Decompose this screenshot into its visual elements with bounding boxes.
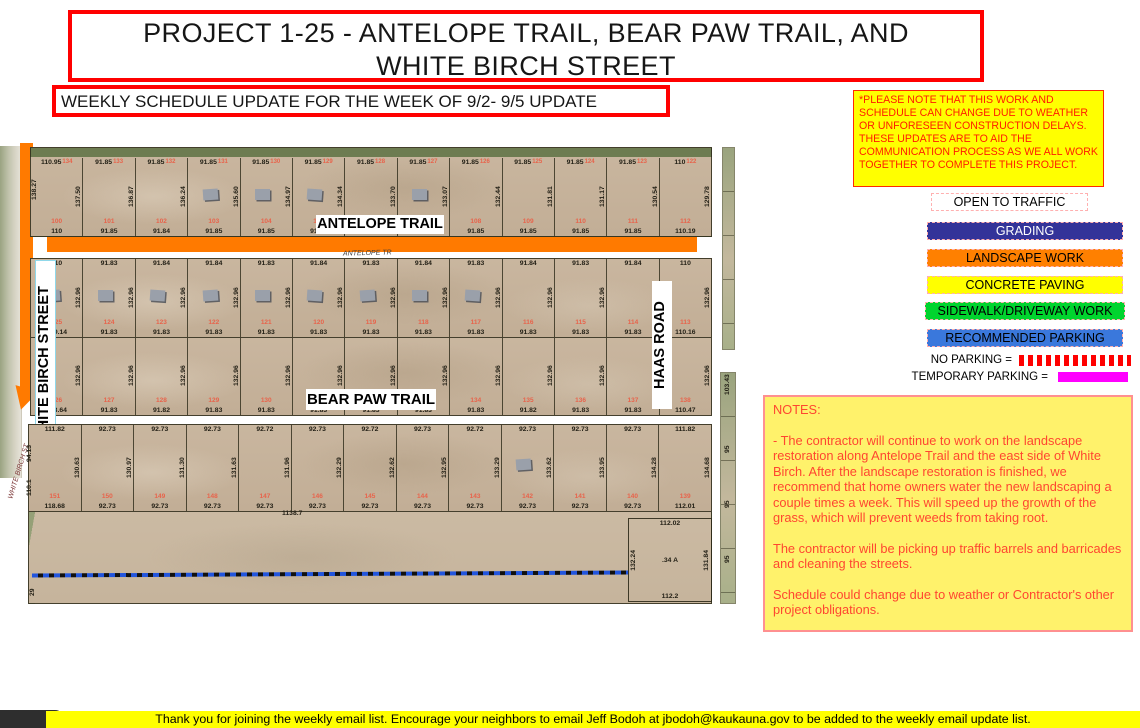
lot-number: 145: [365, 493, 376, 500]
lot-number: 139: [680, 493, 691, 500]
lot-depth-dimension: 132.96: [285, 269, 292, 326]
lot-depth-dimension: 132.96: [128, 269, 135, 326]
lot-depth-dimension: 132.96: [337, 269, 344, 326]
lot-number: 128: [156, 397, 167, 404]
lot-number: 111: [628, 218, 638, 225]
lot-frontage-dimension: 91.83: [503, 329, 554, 336]
lot-depth-dimension: 134.28: [651, 435, 658, 500]
lot-number: 140: [627, 493, 638, 500]
lot-frontage-dimension: 91.84: [503, 260, 554, 267]
lot-depth-dimension: 132.96: [233, 269, 240, 326]
adjacent-lot-number: 123: [637, 159, 647, 165]
lot-frontage-dimension: 91.85133: [83, 159, 134, 166]
lot-frontage-dimension: 91.83: [607, 329, 658, 336]
lot-frontage-dimension: 92.73: [607, 426, 659, 433]
lot-depth-dimension: 132.96: [285, 348, 292, 404]
lot-number: 129: [208, 397, 219, 404]
lot-number: 144: [417, 493, 428, 500]
house-footprint: [412, 189, 427, 200]
west-road-strip: [0, 146, 22, 478]
row-south: 111.82130.63151118.6892.73130.9715092.73…: [28, 424, 712, 512]
lot-frontage-dimension: 91.83: [450, 407, 501, 414]
lot-depth-dimension: 130.54: [652, 168, 659, 225]
lot-frontage-dimension: 91.85128: [345, 159, 396, 166]
lot-depth-dimension: 132.96: [233, 348, 240, 404]
row-mid-north: 110132.96125109.1491.83132.9612491.8391.…: [30, 258, 712, 338]
lot-number: 110: [575, 218, 586, 225]
adjacent-lot-number: 131: [218, 159, 228, 165]
lot-frontage-dimension: 92.72: [344, 426, 396, 433]
legend-temporary-parking-label: TEMPORARY PARKING =: [878, 371, 1048, 383]
lot-frontage-dimension: 91.83: [345, 329, 396, 336]
lot-frontage-dimension: 91.85: [83, 228, 134, 235]
lot-cell: 92.72132.6214592.73: [344, 425, 397, 511]
lot-depth-dimension: 132.29: [336, 435, 343, 500]
disclaimer-note: *PLEASE NOTE THAT THIS WORK AND SCHEDULE…: [853, 90, 1104, 187]
adjacent-lot-number: 132: [165, 159, 175, 165]
lot-frontage-dimension: 110: [31, 228, 82, 235]
strip-dimension: 95: [724, 433, 731, 453]
lot-depth-dimension: 131.30: [179, 435, 186, 500]
west-dimension: 110.1: [26, 470, 33, 496]
lot-number: 120: [313, 319, 324, 326]
lot-depth-dimension: 132.96: [704, 348, 711, 404]
house-footprint: [412, 290, 427, 301]
lot-frontage-dimension: 91.85: [503, 228, 554, 235]
lot-number: 102: [156, 218, 167, 225]
lot-number: 136: [575, 397, 586, 404]
lot-frontage-dimension: 91.83: [83, 407, 134, 414]
lot-frontage-dimension: 91.85: [450, 228, 501, 235]
notes-heading: NOTES:: [773, 402, 1123, 418]
lot-cell: 92.72133.2914392.73: [449, 425, 502, 511]
notes-paragraph: - The contractor will continue to work o…: [773, 433, 1123, 526]
open-field: [28, 512, 712, 604]
lot-depth-dimension: 132.95: [441, 435, 448, 500]
lot-frontage-dimension: 118.68: [29, 503, 81, 510]
house-footprint: [255, 290, 270, 301]
lot-cell: 110.95134137.50100110: [31, 158, 83, 236]
lot-frontage-dimension: 91.85127: [398, 159, 449, 166]
lot-depth-dimension: 132.96: [599, 269, 606, 326]
legend-landscape-work: LANDSCAPE WORK: [927, 249, 1123, 267]
lot-frontage-dimension: 91.84: [136, 260, 187, 267]
lot-frontage-dimension: 91.83: [555, 260, 606, 267]
lot-cell: 91.84132.9612391.83: [136, 259, 188, 337]
lot-frontage-dimension: 91.83: [241, 407, 292, 414]
lot-number: 112: [680, 218, 691, 225]
lot-cell: 91.85123130.5411191.85: [607, 158, 659, 236]
lot-frontage-dimension: 91.85: [241, 228, 292, 235]
lot-depth-dimension: 131.96: [284, 435, 291, 500]
lot-cell: 91.83132.9612491.83: [83, 259, 135, 337]
lot-number: 115: [575, 319, 586, 326]
flyer-page: PROJECT 1-25 - ANTELOPE TRAIL, BEAR PAW …: [0, 0, 1140, 728]
lot-cell: 92.73134.2814092.73: [607, 425, 660, 511]
lot-number: 108: [470, 218, 481, 225]
lot-number: 124: [104, 319, 115, 326]
adjacent-lot-number: 133: [113, 159, 123, 165]
lot-depth-dimension: 131.17: [599, 168, 606, 225]
house-footprint: [464, 290, 480, 302]
lot-cell: 132.9613091.83: [241, 338, 293, 415]
lot-frontage-dimension: 91.85: [188, 228, 239, 235]
lot-number: 146: [312, 493, 323, 500]
lot-number: 104: [261, 218, 272, 225]
lot-number: 116: [523, 319, 534, 326]
lot-depth-dimension: 129.78: [704, 168, 711, 225]
lot-frontage-dimension: 92.73: [134, 426, 186, 433]
lot-number: 141: [575, 493, 586, 500]
house-footprint: [202, 189, 218, 201]
lot-cell: 92.73131.3014992.73: [134, 425, 187, 511]
lot-cell: 91.84132.9611691.83: [503, 259, 555, 337]
strip-dimension: 95: [724, 488, 731, 508]
lot-number: 113: [680, 319, 691, 326]
lot-frontage-dimension: 91.85: [607, 228, 658, 235]
lot-number: 149: [154, 493, 165, 500]
lot-depth-dimension: 132.96: [547, 348, 554, 404]
notes-box: NOTES: - The contractor will continue to…: [763, 395, 1133, 632]
lot-frontage-dimension: 91.83: [188, 407, 239, 414]
lot-frontage-dimension: 110.19: [660, 228, 711, 235]
lot-frontage-dimension: 91.85130: [241, 159, 292, 166]
lot-cell: 91.85126132.4410891.85: [450, 158, 502, 236]
lot-frontage-dimension: 91.83: [450, 329, 501, 336]
lot-depth-dimension: 132.96: [599, 348, 606, 404]
lot-frontage-dimension: 91.85124: [555, 159, 606, 166]
lot-frontage-dimension: 91.84: [607, 260, 658, 267]
lot-cell: 91.84132.9612091.83: [293, 259, 345, 337]
lot-depth-dimension: 131.81: [547, 168, 554, 225]
lot-depth-dimension: 130.97: [126, 435, 133, 500]
lot-frontage-dimension: 92.73: [554, 503, 606, 510]
lot-depth-dimension: 132.96: [180, 269, 187, 326]
bear-paw-trail-label: BEAR PAW TRAIL: [306, 389, 436, 410]
lot-depth-dimension: 134.68: [704, 435, 711, 500]
lot-depth-dimension: 132.96: [75, 269, 82, 326]
lot-cell: 132.9613591.82: [503, 338, 555, 415]
house-footprint: [150, 290, 166, 302]
house-footprint: [307, 189, 323, 201]
lot-frontage-dimension: 91.83: [136, 329, 187, 336]
lot-frontage-dimension: 91.83: [241, 260, 292, 267]
lot-frontage-dimension: 91.83: [293, 329, 344, 336]
lot-cell: 132.9612791.83: [83, 338, 135, 415]
lot-frontage-dimension: 91.85: [555, 228, 606, 235]
lot-cell: 91.85133136.8710191.85: [83, 158, 135, 236]
lot-cell: 91.85130134.9710491.85: [241, 158, 293, 236]
lot-number: 123: [156, 319, 167, 326]
lot-frontage-dimension: 91.85123: [607, 159, 658, 166]
lot-frontage-dimension: 91.83: [188, 329, 239, 336]
lot-frontage-dimension: 110: [660, 260, 711, 267]
legend-grading: GRADING: [927, 222, 1123, 240]
lot-frontage-dimension: 92.73: [397, 426, 449, 433]
lot-frontage-dimension: 91.83: [555, 329, 606, 336]
lot-cell: 92.73132.2914692.73: [292, 425, 345, 511]
lot-number: 100: [51, 218, 62, 225]
lot-frontage-dimension: 92.72: [239, 426, 291, 433]
antelope-trail-label: ANTELOPE TRAIL: [316, 215, 444, 234]
lot-cell: 91.85124131.1711091.85: [555, 158, 607, 236]
lot-depth-dimension: 133.29: [494, 435, 501, 500]
lot-frontage-dimension: 91.82: [136, 407, 187, 414]
adjacent-lot-number: 124: [585, 159, 595, 165]
lot-cell: 92.73130.9715092.73: [82, 425, 135, 511]
west-dimension: 29: [29, 582, 36, 596]
lot-frontage-dimension: 91.85126: [450, 159, 501, 166]
lot-depth-dimension: 132.96: [495, 348, 502, 404]
lot-depth-dimension: 132.96: [390, 269, 397, 326]
lot-frontage-dimension: 91.85125: [503, 159, 554, 166]
west-dimension: 94.13: [26, 436, 33, 462]
notes-paragraph: Schedule could change due to weather or …: [773, 587, 1123, 618]
lot-frontage-dimension: 92.73: [82, 426, 134, 433]
lot-depth-west: 138.27: [31, 160, 38, 200]
lot-frontage-dimension: 92.72: [449, 426, 501, 433]
lot-frontage-dimension: 92.73: [82, 503, 134, 510]
house-footprint: [202, 290, 218, 302]
lot-frontage-dimension: 111.82: [29, 426, 81, 433]
lot-cell: 92.73133.9514192.73: [554, 425, 607, 511]
lot-frontage-dimension: 92.73: [502, 426, 554, 433]
lot-number: 138: [680, 397, 691, 404]
lot-frontage-dimension: 110122: [660, 159, 711, 166]
lot-frontage-dimension: 92.73: [292, 503, 344, 510]
legend-concrete-paving: CONCRETE PAVING: [927, 276, 1123, 294]
lot-cell: 92.73131.6314892.73: [187, 425, 240, 511]
lot-cell: 132.9613691.83: [555, 338, 607, 415]
haas-road-label: HAAS ROAD: [652, 281, 672, 409]
lot-cell: 111.82130.63151118.68: [29, 425, 82, 511]
lot-depth-dimension: 132.96: [495, 269, 502, 326]
lot-frontage-dimension: 91.85132: [136, 159, 187, 166]
lot-cell: 91.85131135.6010391.85: [188, 158, 240, 236]
lot-depth-dimension: 131.63: [231, 435, 238, 500]
legend-no-parking-label: NO PARKING =: [900, 354, 1012, 366]
lot-frontage-dimension: 91.83: [83, 329, 134, 336]
house-footprint: [307, 290, 323, 302]
lot-depth-dimension: 132.96: [128, 348, 135, 404]
house-footprint: [516, 459, 532, 471]
lot-cell: 111.82134.68139112.01: [659, 425, 711, 511]
adjacent-lot-number: 125: [532, 159, 542, 165]
lot-depth-dimension: 134.97: [285, 168, 292, 225]
adjacent-lot-number: 134: [62, 159, 72, 165]
lot-cell: 91.83132.9612191.83: [241, 259, 293, 337]
lot-frontage-dimension: 91.84: [136, 228, 187, 235]
footer-email-banner: Thank you for joining the weekly email l…: [46, 711, 1140, 728]
lot-frontage-dimension: 92.73: [449, 503, 501, 510]
lot-frontage-dimension: 92.73: [607, 503, 659, 510]
lot-depth-dimension: 132.96: [442, 348, 449, 404]
title-line-1: PROJECT 1-25 - ANTELOPE TRAIL, BEAR PAW …: [72, 17, 980, 50]
lot-depth-dimension: 133.62: [546, 435, 553, 500]
lot-frontage-dimension: 92.73: [344, 503, 396, 510]
antelope-tr-street-name: ANTELOPE TR: [343, 249, 392, 257]
lot-frontage-dimension: 91.84: [188, 260, 239, 267]
lot-frontage-dimension: 92.73: [134, 503, 186, 510]
lot-frontage-dimension: 91.83: [83, 260, 134, 267]
adjacent-lot-number: 130: [270, 159, 280, 165]
adjacent-lot-number: 126: [480, 159, 490, 165]
lot-frontage-dimension: 91.83: [607, 407, 658, 414]
lot-cell: 132.9612991.83: [188, 338, 240, 415]
east-parcel-strip: 103.43 959595: [720, 372, 736, 604]
lot-number: 148: [207, 493, 218, 500]
lot-cell: 91.83132.9611591.83: [555, 259, 607, 337]
lot-frontage-dimension: 92.73: [292, 426, 344, 433]
lot-frontage-dimension: 92.73: [502, 503, 554, 510]
lot-number: 130: [261, 397, 272, 404]
legend-open-to-traffic: OPEN TO TRAFFIC: [931, 193, 1088, 211]
lot-cell: 92.72131.9614792.73: [239, 425, 292, 511]
page-title: PROJECT 1-25 - ANTELOPE TRAIL, BEAR PAW …: [68, 10, 984, 82]
house-footprint: [359, 290, 375, 302]
lot-depth-dimension: 132.96: [75, 348, 82, 404]
temporary-parking-swatch: [1058, 372, 1128, 382]
lot-frontage-dimension: 91.82: [503, 407, 554, 414]
lot-number: 142: [522, 493, 533, 500]
lot-number: 119: [366, 319, 377, 326]
adjacent-lot-number: 129: [323, 159, 333, 165]
adjacent-lot-number: 128: [375, 159, 385, 165]
lot-frontage-dimension: 92.73: [397, 503, 449, 510]
lot-number: 122: [208, 319, 219, 326]
lot-number: 151: [49, 493, 60, 500]
lot-frontage-dimension: 92.73: [187, 426, 239, 433]
lot-depth-dimension: 136.24: [180, 168, 187, 225]
lot-number: 137: [628, 397, 639, 404]
lot-depth-dimension: 135.60: [233, 168, 240, 225]
lot-number: 147: [259, 493, 270, 500]
strip-dimension: 103.43: [724, 359, 731, 395]
lot-depth-dimension: 132.62: [389, 435, 396, 500]
lot-frontage-dimension: 91.85129: [293, 159, 344, 166]
lot-number: 127: [104, 397, 115, 404]
strip-dimension: 95: [724, 543, 731, 563]
lot-cell: 110122129.78112110.19: [660, 158, 711, 236]
legend-sidewalk-driveway-work: SIDEWALK/DRIVEWAY WORK: [925, 302, 1125, 320]
lot-cell: 91.84132.9612291.83: [188, 259, 240, 337]
lot-number: 121: [261, 319, 272, 326]
notes-paragraph: The contractor will be picking up traffi…: [773, 541, 1123, 572]
lot-frontage-dimension: 111.82: [659, 426, 711, 433]
lot-depth-dimension: 132.96: [442, 269, 449, 326]
lot-number: 103: [208, 218, 219, 225]
lot-number: 150: [102, 493, 113, 500]
lot-frontage-dimension: 112.01: [659, 503, 711, 510]
lot-depth-dimension: 132.96: [180, 348, 187, 404]
lot-frontage-dimension: 91.85131: [188, 159, 239, 166]
lot-frontage-dimension: 110.95134: [31, 159, 82, 166]
lot-number: 135: [523, 397, 534, 404]
lot-number: 117: [471, 319, 482, 326]
lot-number: 118: [418, 319, 429, 326]
lot-depth-dimension: 137.50: [75, 168, 82, 225]
lot-cell: 91.85125131.8110991.85: [503, 158, 555, 236]
lot-number: 114: [628, 319, 639, 326]
lot-cell: 91.85132136.2410291.84: [136, 158, 188, 236]
parcel-area: .34 A: [629, 557, 711, 564]
lot-depth-dimension: 132.44: [495, 168, 502, 225]
weekly-update-banner: WEEKLY SCHEDULE UPDATE FOR THE WEEK OF 9…: [52, 85, 670, 117]
lot-depth-dimension: 136.87: [128, 168, 135, 225]
lot-depth-dimension: 132.96: [547, 269, 554, 326]
lot-frontage-dimension: 91.83: [345, 260, 396, 267]
lot-cell: 91.84132.9611891.83: [398, 259, 450, 337]
no-parking-swatch: [1019, 355, 1131, 366]
lot-cell: 132.9612891.82: [136, 338, 188, 415]
legend-recommended-parking: RECOMMENDED PARKING: [927, 329, 1123, 347]
lot-frontage-dimension: 91.84: [293, 260, 344, 267]
lot-number: 109: [523, 218, 534, 225]
lot-depth-dimension: 133.95: [599, 435, 606, 500]
lot-frontage-dimension: 91.83: [398, 329, 449, 336]
lot-number: 101: [104, 218, 115, 225]
southeast-parcel: 112.02 132.24 131.84 .34 A 112.2: [628, 518, 712, 602]
lot-cell: 132.9613491.83: [450, 338, 502, 415]
title-line-2: WHITE BIRCH STREET: [72, 50, 980, 83]
lot-frontage-dimension: 91.83: [555, 407, 606, 414]
adjacent-lot-number: 122: [686, 159, 696, 165]
lot-frontage-dimension: 92.73: [554, 426, 606, 433]
lot-cell: 92.73132.9514492.73: [397, 425, 450, 511]
lot-cell: 92.73133.6214292.73: [502, 425, 555, 511]
lot-number: 143: [470, 493, 481, 500]
lot-depth-dimension: 132.96: [704, 269, 711, 326]
lot-frontage-dimension: 92.73: [187, 503, 239, 510]
east-parcel-strip: [722, 147, 735, 350]
lot-frontage-dimension: 92.73: [239, 503, 291, 510]
lot-frontage-dimension: 91.83: [241, 329, 292, 336]
house-footprint: [255, 189, 270, 200]
south-boundary-dimension: 1138.7: [282, 510, 302, 517]
house-footprint: [98, 290, 113, 301]
lot-depth-dimension: 130.63: [74, 435, 81, 500]
lot-cell: 91.83132.9611991.83: [345, 259, 397, 337]
parcel-dimension: 112.2: [629, 593, 711, 600]
lot-frontage-dimension: 91.84: [398, 260, 449, 267]
adjacent-lot-number: 127: [427, 159, 437, 165]
lot-number: 134: [470, 397, 481, 404]
parcel-dimension: 112.02: [629, 520, 711, 527]
lot-cell: 91.83132.9611791.83: [450, 259, 502, 337]
lot-frontage-dimension: 91.83: [450, 260, 501, 267]
